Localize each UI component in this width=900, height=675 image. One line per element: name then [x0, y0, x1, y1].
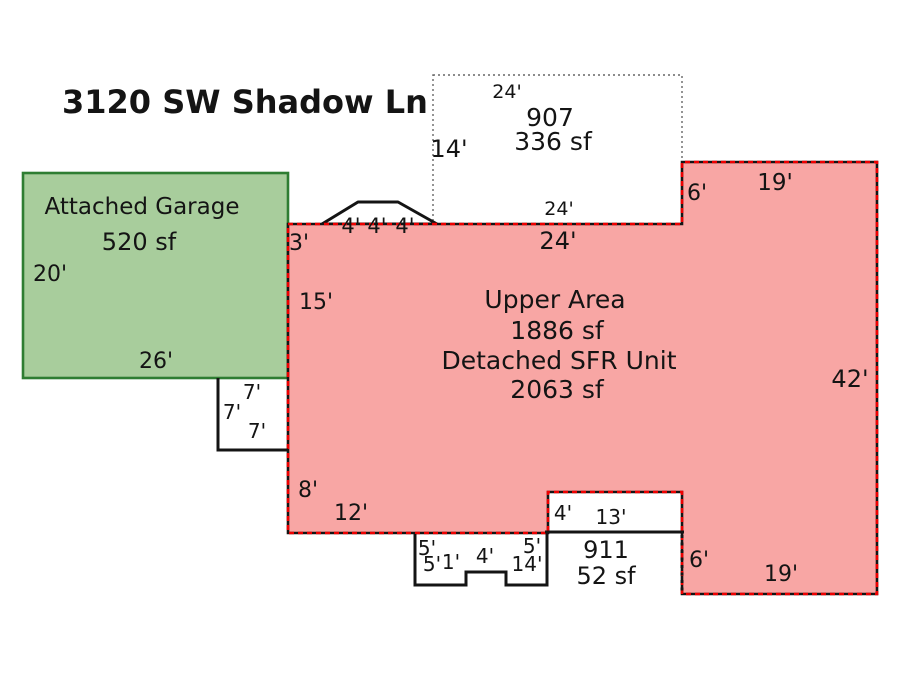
- upper-area-sf: 1886 sf: [510, 316, 605, 345]
- bay-dim-1: 4': [341, 214, 360, 238]
- upper-dim-left-step: 3': [289, 231, 309, 256]
- upper-dim-bottom-right: 19': [764, 562, 798, 587]
- garage-dim-bottom: 26': [139, 349, 173, 374]
- notch-dim-left: 7': [223, 400, 241, 424]
- unit911-dim-width: 13': [596, 505, 627, 529]
- unit907-area: 336 sf: [514, 127, 593, 156]
- garage-area: 520 sf: [102, 228, 177, 256]
- upper-dim-top-right: 19': [757, 170, 793, 196]
- upper-dim-left-lower: 8': [298, 478, 318, 503]
- porch-dim-4: 4': [476, 544, 494, 568]
- garage-dim-left: 20': [33, 262, 67, 287]
- unit911-dim-height: 4': [554, 501, 572, 525]
- upper-dim-top: 24': [539, 227, 576, 255]
- upper-area-title: Upper Area: [484, 285, 625, 314]
- garage-label: Attached Garage: [45, 194, 240, 220]
- bay-dim-2: 4': [367, 214, 386, 238]
- notch-dim-top: 7': [243, 380, 261, 404]
- upper-dim-step-top-right: 6': [687, 181, 707, 206]
- notch-dim-bottom: 7': [248, 419, 266, 443]
- upper-dim-step-bottom-right: 6': [689, 548, 709, 573]
- upper-area-subtitle: Detached SFR Unit: [442, 346, 677, 375]
- unit907-dim-left: 14': [430, 135, 467, 163]
- bay-dim-3: 4': [395, 214, 414, 238]
- porch-dim-2: 5': [423, 552, 441, 576]
- unit911-area: 52 sf: [576, 562, 636, 590]
- page-title: 3120 SW Shadow Ln: [62, 83, 428, 121]
- upper-dim-bottom-left: 12': [334, 501, 368, 526]
- unit907-dim-top: 24': [492, 81, 521, 103]
- floorplan-sketch: 3120 SW Shadow Ln Attached Garage 520 sf…: [0, 0, 900, 675]
- upper-dim-right: 42': [831, 365, 868, 393]
- unit911-id: 911: [583, 536, 629, 564]
- porch-dim-3: 1': [442, 550, 460, 574]
- unit907-dim-bottom: 24': [544, 198, 573, 220]
- porch-dim-6: 14': [512, 552, 543, 576]
- upper-area-total-sf: 2063 sf: [510, 375, 605, 404]
- upper-dim-left-upper: 15': [299, 290, 333, 315]
